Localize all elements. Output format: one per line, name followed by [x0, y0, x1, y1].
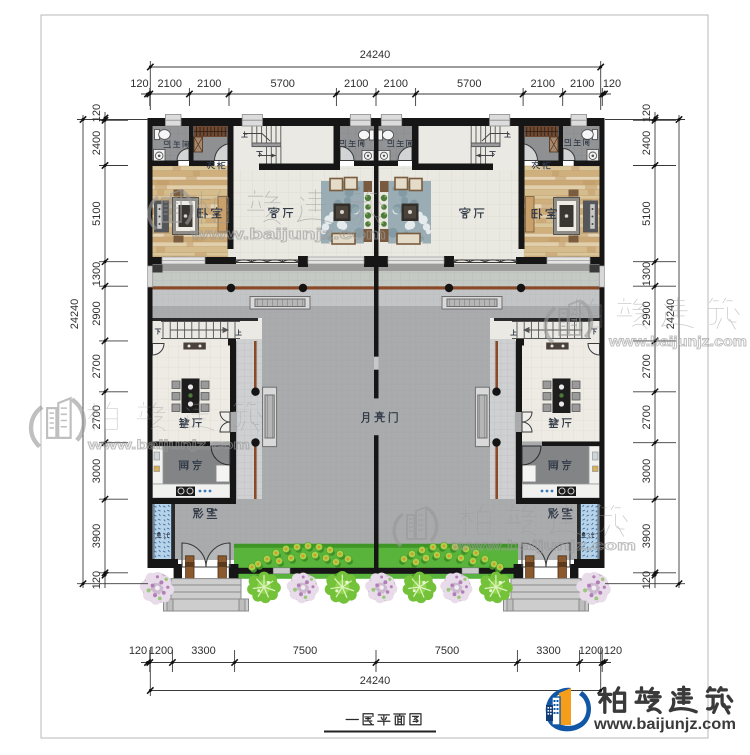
- svg-text:120: 120: [130, 78, 148, 90]
- svg-text:2400: 2400: [641, 131, 653, 155]
- svg-text:2100: 2100: [197, 78, 221, 90]
- svg-text:7500: 7500: [435, 645, 459, 657]
- svg-text:5700: 5700: [457, 78, 481, 90]
- svg-text:www.baijunjz.com: www.baijunjz.com: [450, 538, 636, 553]
- svg-text:1200: 1200: [149, 645, 173, 657]
- svg-text:3300: 3300: [536, 645, 560, 657]
- svg-text:3300: 3300: [191, 645, 215, 657]
- svg-text:24240: 24240: [360, 49, 391, 61]
- svg-text:2900: 2900: [91, 301, 103, 325]
- svg-text:3900: 3900: [91, 524, 103, 548]
- svg-text:3000: 3000: [641, 459, 653, 483]
- svg-text:2700: 2700: [641, 354, 653, 378]
- svg-text:1300: 1300: [641, 262, 653, 286]
- svg-text:120: 120: [603, 78, 621, 90]
- svg-text:5100: 5100: [641, 201, 653, 225]
- svg-text:2400: 2400: [91, 131, 103, 155]
- svg-text:120: 120: [641, 104, 653, 122]
- svg-text:120: 120: [91, 104, 103, 122]
- svg-text:120: 120: [129, 645, 147, 657]
- svg-text:5700: 5700: [270, 78, 294, 90]
- svg-text:3900: 3900: [641, 524, 653, 548]
- svg-text:2100: 2100: [158, 78, 182, 90]
- svg-text:2700: 2700: [641, 405, 653, 429]
- svg-text:24240: 24240: [69, 299, 81, 330]
- svg-text:2100: 2100: [384, 78, 408, 90]
- svg-text:www.baijunjz.com: www.baijunjz.com: [189, 227, 386, 243]
- svg-text:120: 120: [91, 571, 103, 589]
- svg-text:24240: 24240: [360, 675, 391, 687]
- svg-text:3000: 3000: [91, 459, 103, 483]
- svg-text:2100: 2100: [344, 78, 368, 90]
- svg-text:120: 120: [641, 571, 653, 589]
- svg-text:7500: 7500: [293, 645, 317, 657]
- svg-text:5100: 5100: [91, 201, 103, 225]
- svg-text:1300: 1300: [91, 262, 103, 286]
- svg-text:2100: 2100: [570, 78, 594, 90]
- svg-text:1200: 1200: [579, 645, 603, 657]
- svg-text:120: 120: [604, 645, 622, 657]
- svg-text:www.baijunjz.com: www.baijunjz.com: [87, 437, 250, 452]
- svg-text:www.baijunjz.com: www.baijunjz.com: [608, 334, 747, 349]
- svg-text:2100: 2100: [531, 78, 555, 90]
- svg-text:2700: 2700: [91, 354, 103, 378]
- svg-text:www.baijunjz.com: www.baijunjz.com: [593, 716, 736, 733]
- svg-text:2700: 2700: [91, 405, 103, 429]
